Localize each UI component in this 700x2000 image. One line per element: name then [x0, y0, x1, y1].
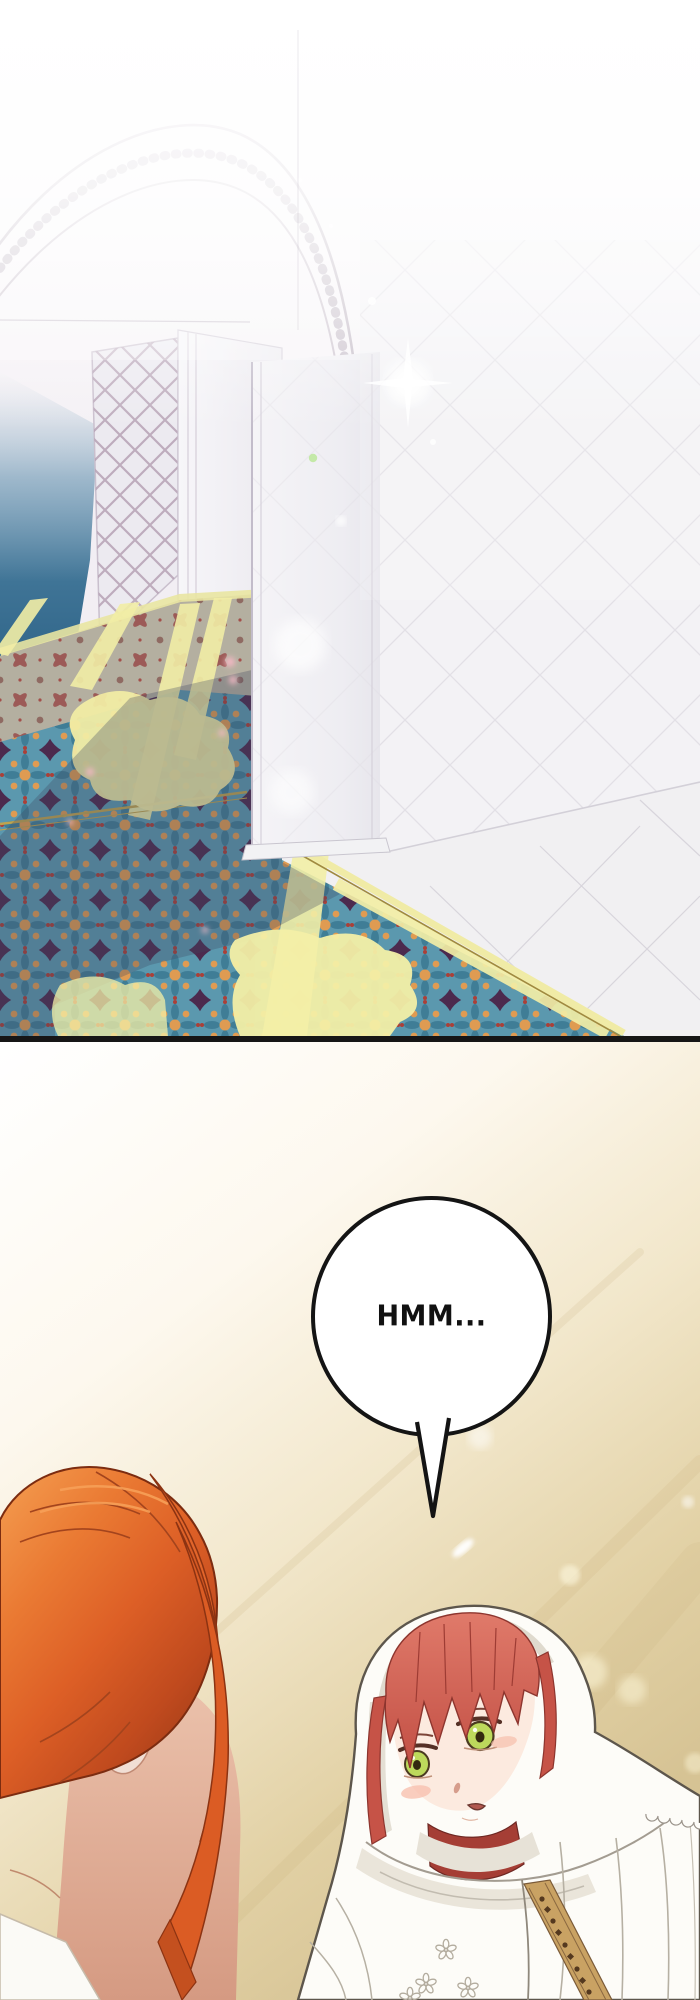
webtoon-page: HMM...: [0, 0, 700, 2000]
character-illustration: [0, 1042, 700, 2000]
speech-bubble: HMM...: [311, 1196, 552, 1437]
speech-bubble-tail: [405, 1412, 463, 1528]
speech-bubble-text: HMM...: [376, 1300, 486, 1332]
hallway-illustration: [0, 0, 700, 1036]
panel-hallway-scene: [0, 0, 700, 1042]
panel-character-scene: HMM...: [0, 1042, 700, 2000]
